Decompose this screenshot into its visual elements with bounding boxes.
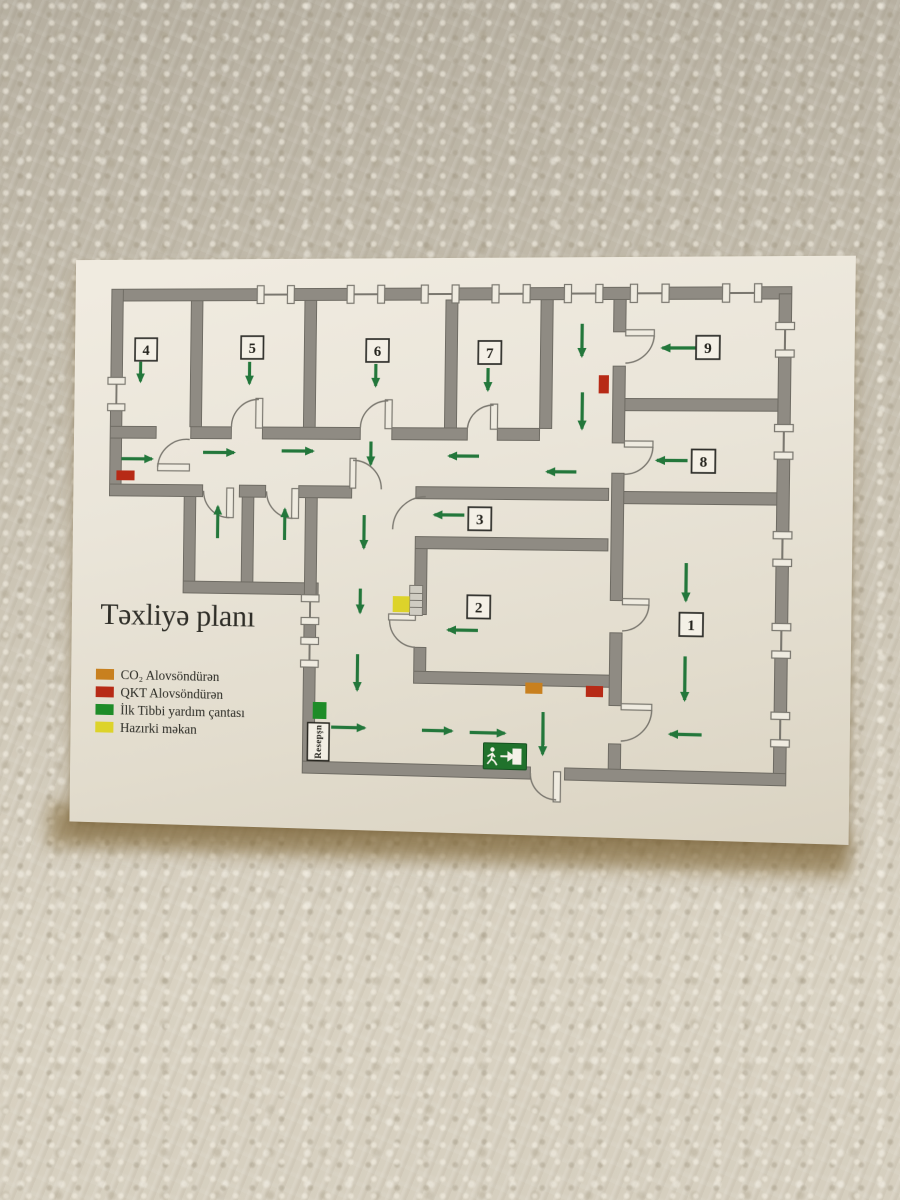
current-location-marker — [393, 596, 410, 612]
qkt-extinguisher-marker — [586, 686, 603, 697]
window-icon — [347, 285, 385, 303]
window-icon — [772, 623, 791, 658]
qkt-extinguisher-marker — [116, 470, 134, 480]
legend-item-first-aid: İlk Tibbi yardım çantası — [95, 703, 244, 719]
window-icon — [774, 424, 793, 459]
room-label-3: 3 — [468, 507, 491, 530]
floor-plan: 4 5 6 7 9 8 3 2 1 Resepşn — [69, 256, 855, 845]
svg-text:3: 3 — [476, 512, 484, 528]
window-icon — [108, 377, 126, 410]
plan-title: Təxliyə planı — [100, 596, 255, 634]
co2-extinguisher-swatch-icon — [96, 669, 114, 680]
first-aid-kit-marker — [313, 702, 327, 719]
door-junction — [350, 458, 382, 489]
legend-label: İlk Tibbi yardım çantası — [120, 703, 245, 719]
window-icon — [301, 595, 319, 625]
window-icon — [630, 284, 669, 302]
evacuation-plan-sheet: 4 5 6 7 9 8 3 2 1 Resepşn — [69, 256, 855, 845]
door-room1-lower — [621, 704, 652, 742]
room-label-8: 8 — [691, 449, 715, 473]
room-label-4: 4 — [135, 338, 157, 361]
door-room5 — [231, 398, 262, 428]
qkt-extinguisher-swatch-icon — [96, 686, 114, 697]
svg-text:2: 2 — [475, 600, 483, 616]
legend-item-current-location: Hazırki məkan — [95, 721, 244, 737]
svg-text:4: 4 — [142, 343, 150, 359]
svg-text:6: 6 — [374, 344, 382, 360]
window-icon — [492, 285, 530, 303]
window-icon — [775, 322, 794, 357]
door-toilet-b — [266, 488, 299, 518]
current-location-swatch-icon — [95, 722, 113, 733]
window-icon — [773, 532, 792, 567]
door-room8 — [624, 441, 653, 475]
door-room9 — [625, 330, 654, 363]
reception-label: Resepşn — [313, 725, 323, 759]
room-label-2: 2 — [467, 595, 490, 618]
qkt-extinguisher-marker — [599, 375, 609, 393]
exit-sign — [483, 743, 526, 770]
door-main-exit — [530, 771, 561, 802]
window-icon — [257, 286, 294, 304]
room-label-5: 5 — [241, 336, 264, 359]
door-room7 — [467, 404, 497, 429]
legend-label: CO₂ Alovsöndürən — [121, 668, 220, 683]
legend-item-qkt: QKT Alovsöndürən — [96, 685, 246, 701]
co2-extinguisher-marker — [525, 683, 542, 694]
reception-desk: Resepşn — [307, 723, 329, 761]
room-label-1: 1 — [679, 613, 703, 637]
first-aid-swatch-icon — [95, 704, 113, 715]
legend-item-co2: CO₂ Alovsöndürən — [96, 668, 246, 684]
svg-text:9: 9 — [704, 341, 712, 357]
door-room1-upper — [622, 599, 649, 632]
room-label-7: 7 — [478, 341, 501, 364]
textured-wall-photo: 4 5 6 7 9 8 3 2 1 Resepşn — [0, 0, 900, 1200]
window-icon — [564, 284, 603, 302]
window-icon — [771, 712, 790, 747]
door-room4 — [158, 439, 190, 471]
window-icon — [301, 637, 319, 667]
window-icon — [722, 284, 761, 302]
legend-label: QKT Alovsöndürən — [120, 686, 223, 701]
door-room6 — [360, 400, 392, 429]
door-zone3 — [393, 496, 426, 529]
window-icon — [421, 285, 459, 303]
radiator-symbol — [409, 585, 422, 615]
room-label-6: 6 — [366, 339, 389, 362]
door-room2 — [388, 614, 415, 647]
svg-text:1: 1 — [687, 618, 695, 635]
legend-label: Hazırki məkan — [120, 721, 197, 736]
room-label-9: 9 — [696, 336, 720, 359]
svg-text:8: 8 — [699, 454, 707, 471]
legend: CO₂ Alovsöndürən QKT Alovsöndürən İlk Ti… — [95, 668, 245, 742]
svg-text:7: 7 — [486, 346, 494, 362]
svg-text:5: 5 — [249, 341, 256, 357]
